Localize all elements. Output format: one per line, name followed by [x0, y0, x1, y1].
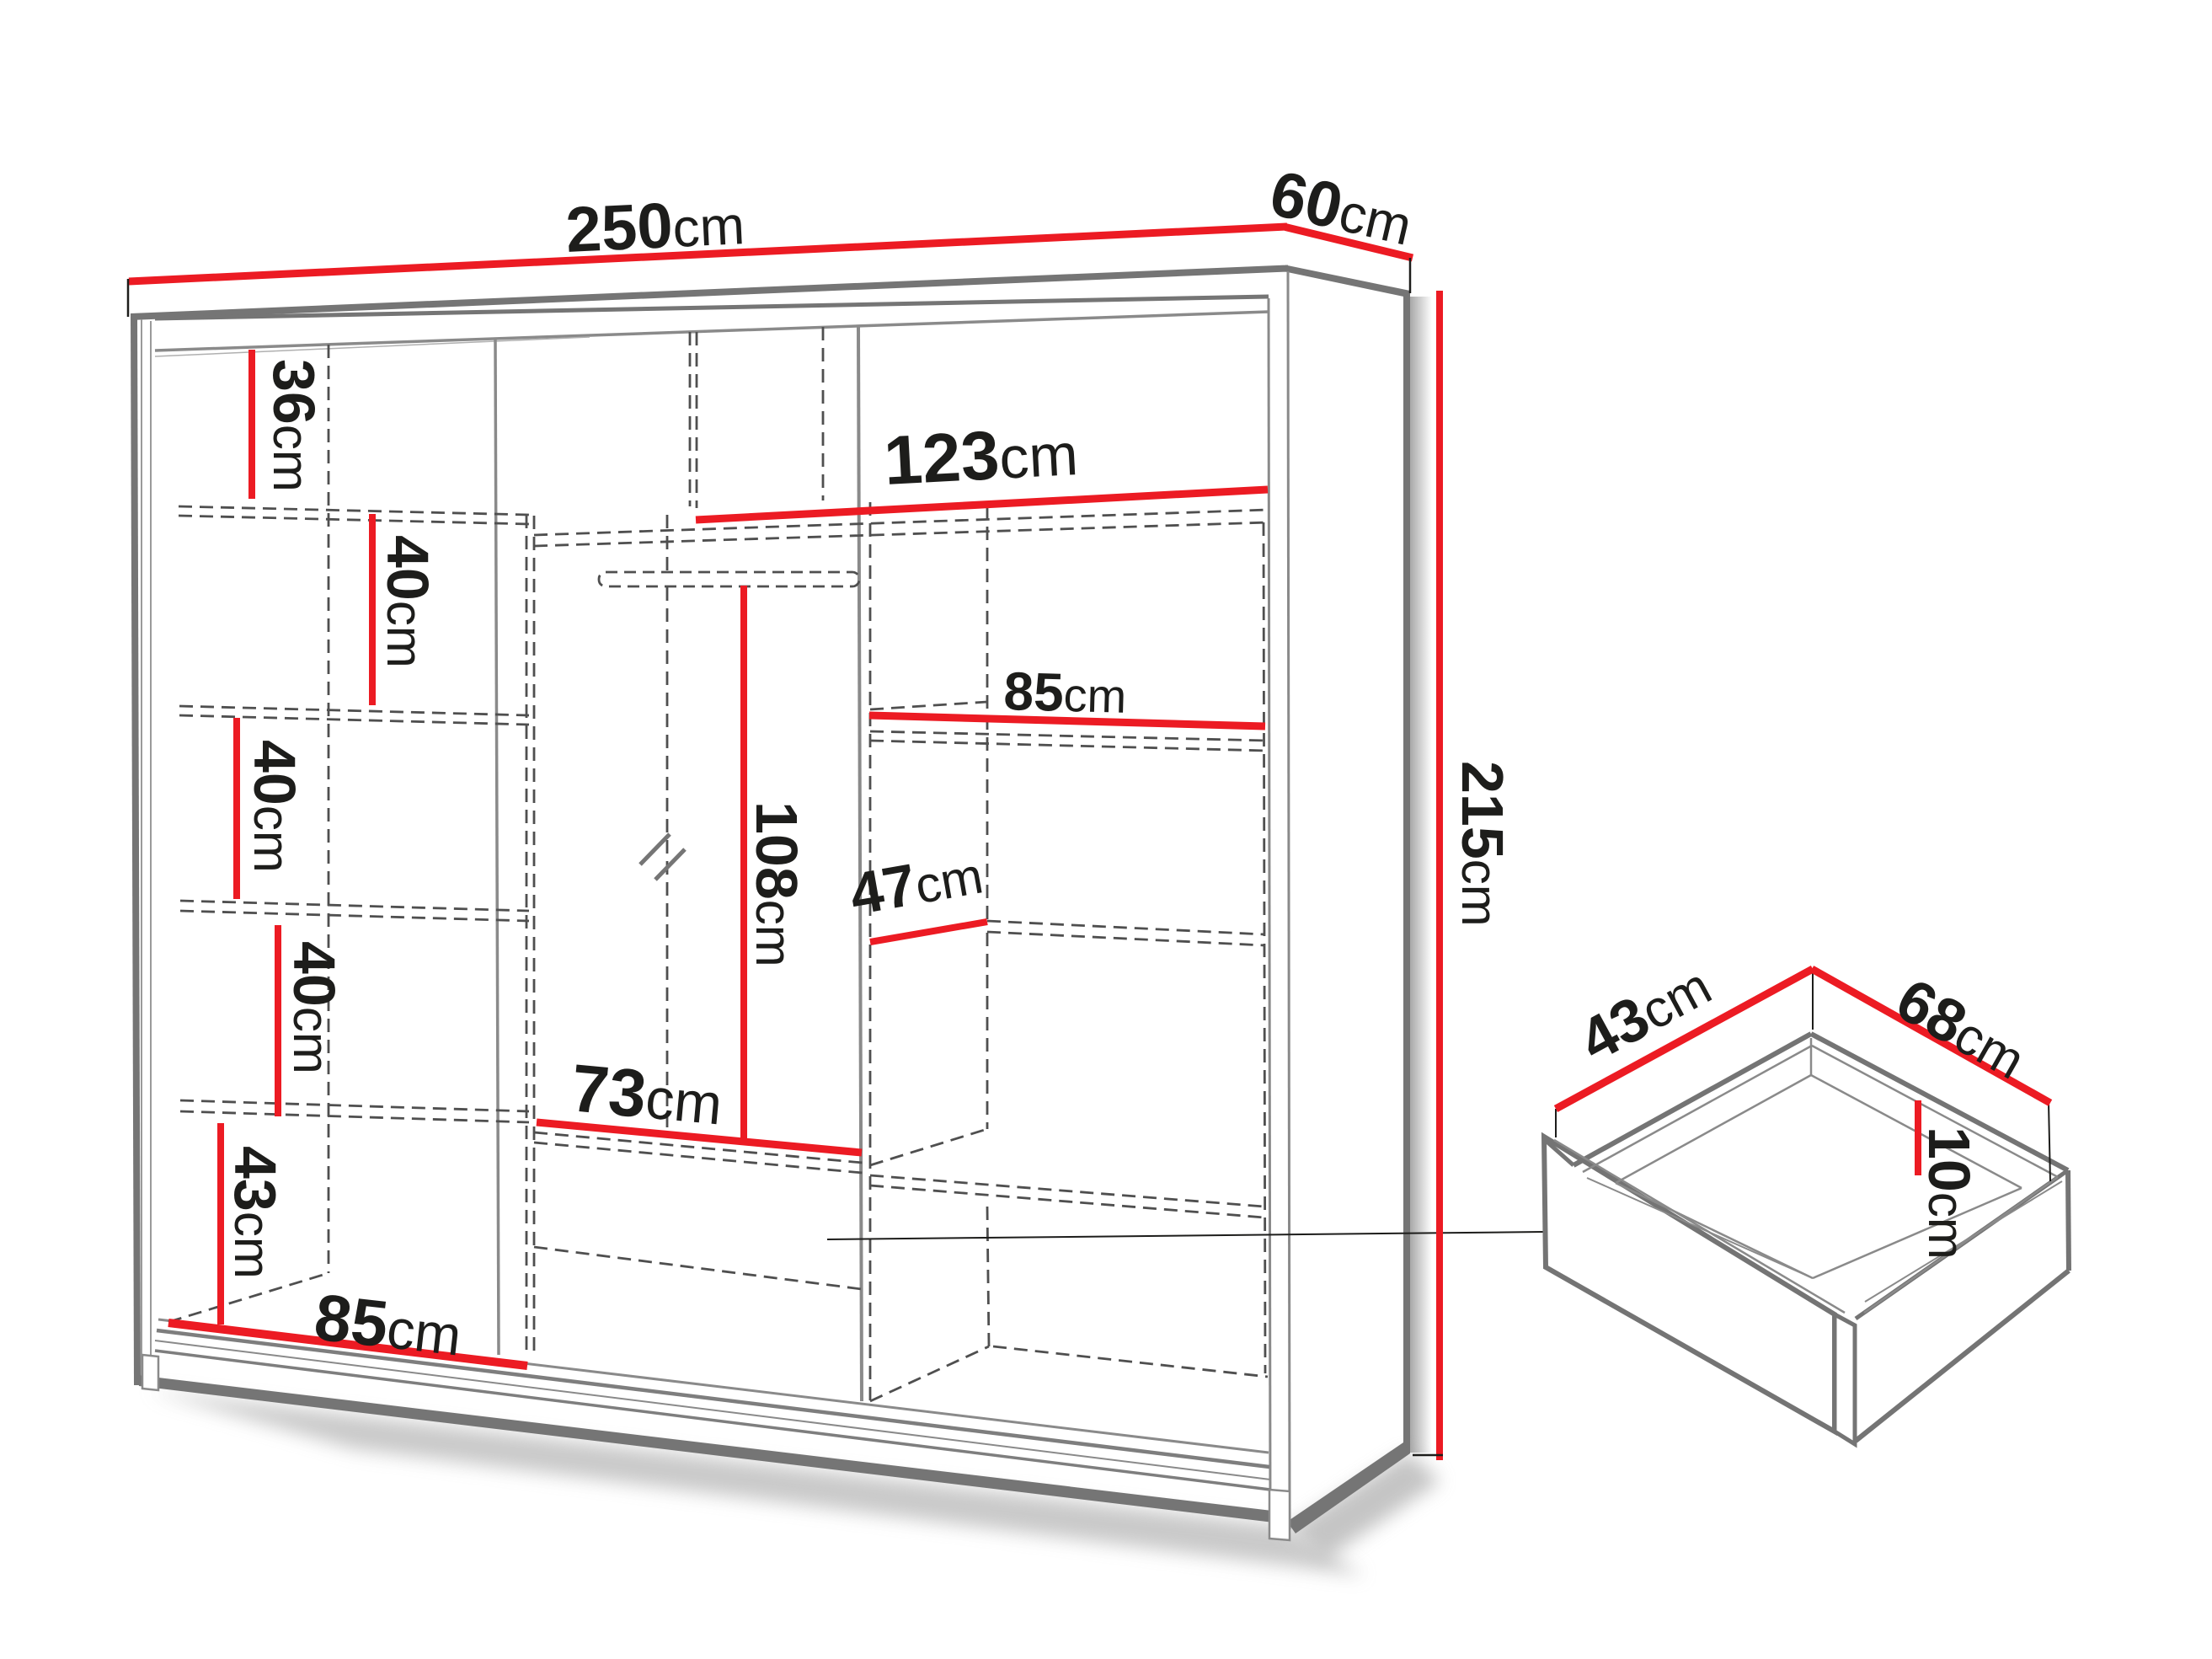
svg-text:10cm: 10cm [1916, 1127, 1982, 1260]
svg-text:40cm: 40cm [281, 941, 347, 1074]
svg-text:40cm: 40cm [242, 740, 307, 873]
svg-text:85cm: 85cm [1003, 661, 1128, 725]
svg-text:40cm: 40cm [375, 535, 441, 668]
svg-text:215cm: 215cm [1450, 761, 1515, 927]
svg-text:123cm: 123cm [882, 413, 1080, 500]
svg-text:36cm: 36cm [261, 359, 327, 492]
svg-text:108cm: 108cm [744, 801, 809, 967]
svg-text:43cm: 43cm [222, 1146, 288, 1279]
svg-text:250cm: 250cm [564, 186, 746, 266]
